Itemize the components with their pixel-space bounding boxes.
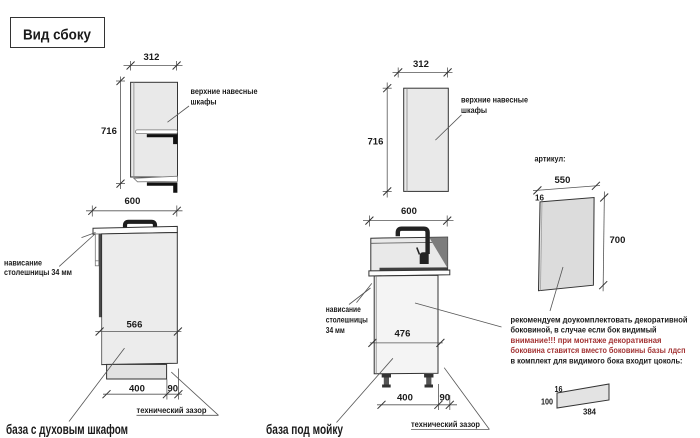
svg-text:столешницы 34 мм: столешницы 34 мм: [4, 268, 72, 277]
svg-text:700: 700: [610, 235, 626, 246]
svg-text:артикул:: артикул:: [535, 155, 566, 164]
svg-text:верхние навесные: верхние навесные: [191, 87, 258, 96]
svg-text:312: 312: [413, 59, 429, 70]
svg-text:550: 550: [555, 175, 571, 186]
svg-text:476: 476: [395, 329, 411, 340]
svg-text:технический зазор: технический зазор: [137, 406, 207, 415]
svg-text:716: 716: [101, 126, 117, 137]
svg-text:400: 400: [397, 393, 413, 404]
svg-text:технический зазор: технический зазор: [411, 420, 480, 429]
svg-text:база с духовым шкафом: база с духовым шкафом: [6, 422, 128, 437]
svg-text:384: 384: [583, 408, 597, 417]
svg-text:312: 312: [144, 52, 160, 63]
svg-text:600: 600: [125, 196, 141, 207]
svg-text:в комплект для видимого бока в: в комплект для видимого бока входит цоко…: [511, 357, 683, 366]
svg-text:716: 716: [368, 137, 384, 148]
svg-text:16: 16: [555, 385, 563, 394]
svg-text:нависание: нависание: [326, 305, 361, 314]
svg-text:90: 90: [168, 384, 179, 395]
svg-text:боковиной, в случае если бок в: боковиной, в случае если бок видимый: [511, 326, 657, 335]
svg-text:шкафы: шкафы: [461, 106, 487, 115]
svg-text:566: 566: [127, 320, 143, 331]
svg-text:верхние навесные: верхние навесные: [461, 96, 528, 105]
svg-text:Вид сбоку: Вид сбоку: [23, 27, 92, 44]
svg-text:34 мм: 34 мм: [326, 326, 345, 335]
svg-text:внимание!!! при монтаже декора: внимание!!! при монтаже декоративная: [511, 336, 662, 345]
svg-text:400: 400: [129, 384, 145, 395]
svg-text:600: 600: [401, 206, 417, 217]
svg-text:рекомендуем доукомплектовать д: рекомендуем доукомплектовать декоративно…: [511, 316, 688, 325]
svg-text:нависание: нависание: [4, 259, 42, 268]
svg-text:база под мойку: база под мойку: [266, 422, 343, 437]
svg-text:столешницы: столешницы: [326, 316, 368, 325]
svg-text:100: 100: [541, 398, 553, 407]
svg-text:боковина ставится вместо боков: боковина ставится вместо боковины базы л…: [511, 346, 686, 355]
svg-text:шкафы: шкафы: [191, 98, 217, 107]
